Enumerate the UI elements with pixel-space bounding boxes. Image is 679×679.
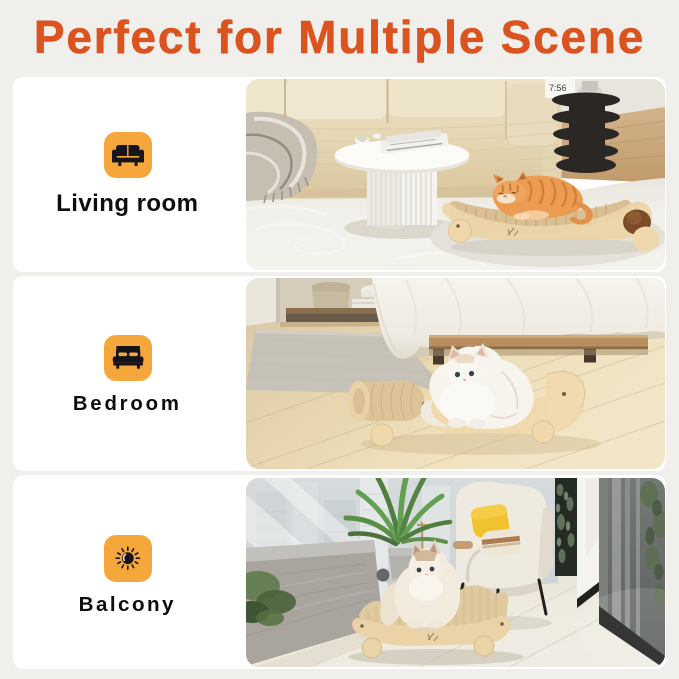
svg-text:7:56: 7:56 xyxy=(549,83,567,93)
